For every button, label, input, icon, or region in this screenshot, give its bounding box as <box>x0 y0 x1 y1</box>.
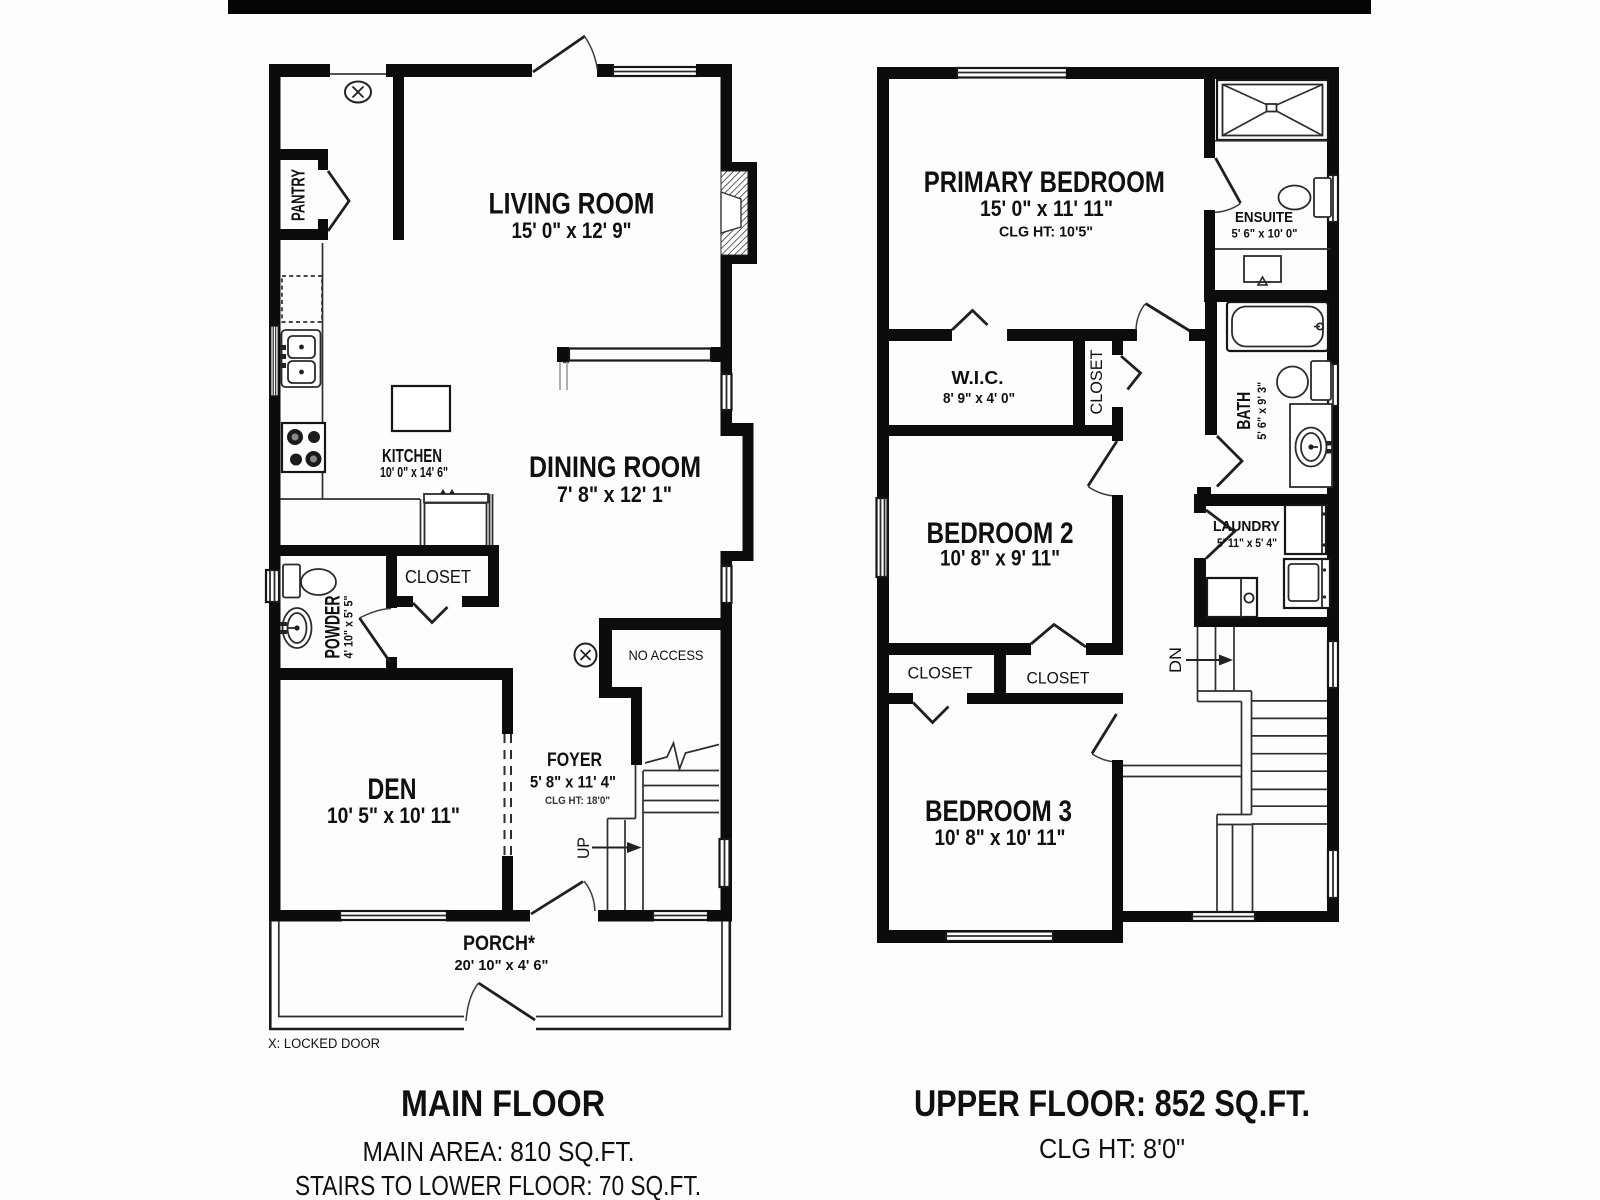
svg-text:10' 0" x 14' 6": 10' 0" x 14' 6" <box>380 465 448 481</box>
svg-text:ENSUITE: ENSUITE <box>1235 210 1293 226</box>
svg-text:10' 5" x 10' 11": 10' 5" x 10' 11" <box>327 803 460 828</box>
svg-text:DINING ROOM: DINING ROOM <box>529 451 701 484</box>
svg-text:PORCH*: PORCH* <box>463 932 536 955</box>
svg-text:CLOSET: CLOSET <box>1087 350 1106 415</box>
svg-text:CLOSET: CLOSET <box>405 567 471 587</box>
svg-text:X: LOCKED DOOR: X: LOCKED DOOR <box>268 1036 380 1051</box>
svg-text:5' 8" x 11' 4": 5' 8" x 11' 4" <box>530 774 616 792</box>
svg-text:CLG HT: 18'0": CLG HT: 18'0" <box>545 795 610 807</box>
svg-text:CLG HT: 10'5": CLG HT: 10'5" <box>999 225 1093 241</box>
svg-text:MAIN AREA: 810 SQ.FT.: MAIN AREA: 810 SQ.FT. <box>363 1136 635 1167</box>
svg-text:FOYER: FOYER <box>547 750 602 771</box>
svg-text:15' 0" x 11' 11": 15' 0" x 11' 11" <box>980 196 1113 221</box>
svg-text:4' 10" x 5' 5": 4' 10" x 5' 5" <box>342 596 356 659</box>
svg-text:LIVING ROOM: LIVING ROOM <box>489 188 655 221</box>
svg-text:LAUNDRY: LAUNDRY <box>1213 518 1280 535</box>
svg-text:5' 6" x 10' 0": 5' 6" x 10' 0" <box>1232 227 1298 241</box>
svg-text:KITCHEN: KITCHEN <box>382 446 442 466</box>
svg-text:15' 0" x 12' 9": 15' 0" x 12' 9" <box>512 218 632 243</box>
svg-text:10' 8" x 9' 11": 10' 8" x 9' 11" <box>940 546 1060 571</box>
svg-text:CLG HT: 8'0": CLG HT: 8'0" <box>1039 1133 1185 1164</box>
svg-text:PANTRY: PANTRY <box>289 169 309 221</box>
svg-text:8' 9" x 4' 0": 8' 9" x 4' 0" <box>943 390 1015 407</box>
svg-text:7' 8" x 12' 1": 7' 8" x 12' 1" <box>557 482 672 507</box>
svg-text:DEN: DEN <box>368 773 417 806</box>
svg-text:PRIMARY BEDROOM: PRIMARY BEDROOM <box>924 166 1165 199</box>
svg-text:UPPER FLOOR: 852 SQ.FT.: UPPER FLOOR: 852 SQ.FT. <box>914 1083 1310 1124</box>
svg-text:W.I.C.: W.I.C. <box>952 368 1004 388</box>
svg-text:BEDROOM 3: BEDROOM 3 <box>925 795 1072 828</box>
svg-text:5' 11" x 5' 4": 5' 11" x 5' 4" <box>1217 536 1277 550</box>
svg-text:NO ACCESS: NO ACCESS <box>629 647 704 663</box>
svg-text:CLOSET: CLOSET <box>1027 669 1090 688</box>
svg-text:UP: UP <box>574 837 593 859</box>
svg-text:10' 8" x 10' 11": 10' 8" x 10' 11" <box>935 825 1066 850</box>
svg-text:CLOSET: CLOSET <box>908 664 973 683</box>
svg-text:5' 6" x 9' 3": 5' 6" x 9' 3" <box>1255 382 1269 440</box>
svg-text:BATH: BATH <box>1234 392 1254 430</box>
svg-text:STAIRS TO LOWER FLOOR: 70 SQ.F: STAIRS TO LOWER FLOOR: 70 SQ.FT. <box>295 1170 701 1200</box>
svg-text:DN: DN <box>1166 647 1185 673</box>
svg-text:MAIN FLOOR: MAIN FLOOR <box>401 1083 605 1124</box>
svg-text:20' 10" x 4' 6": 20' 10" x 4' 6" <box>455 957 549 974</box>
